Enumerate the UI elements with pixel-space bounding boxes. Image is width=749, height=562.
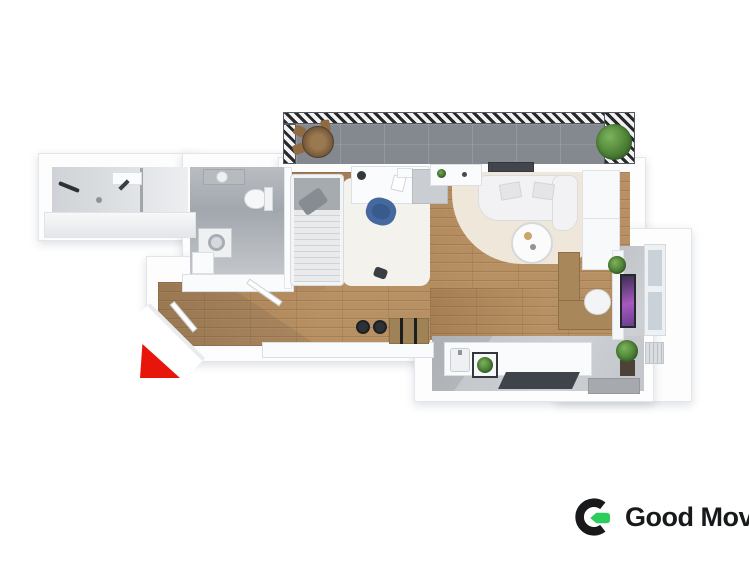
desk-lamp-icon (357, 171, 366, 180)
balcony-door (488, 162, 534, 172)
coffee-table (511, 222, 553, 264)
doormat (588, 378, 640, 394)
hall-bench (389, 318, 429, 344)
brand-logo-text: Good Move (625, 502, 749, 533)
brand-logo: Good Move (573, 496, 749, 538)
sofa-chaise (552, 175, 578, 231)
wall-face-hall (262, 342, 434, 358)
window-pane (648, 250, 662, 286)
bed-mattress (294, 210, 340, 282)
shelf-plant-icon (608, 256, 626, 274)
bar-stool-icon (356, 320, 370, 334)
hall-bench-divider (414, 318, 417, 344)
plant-stand (620, 360, 635, 376)
washing-machine-door (208, 234, 225, 251)
kitchen-mat (498, 372, 580, 389)
coffee-table-item (524, 232, 532, 240)
terrarium-plant-icon (477, 357, 493, 373)
balcony-floor (296, 124, 604, 164)
sofa-pillow (532, 182, 555, 201)
toilet-tank (264, 187, 273, 211)
sideboard-item (462, 172, 467, 177)
office-desk-side (558, 252, 580, 306)
floorplan-render: Good Move (0, 0, 749, 562)
coffee-table-item (530, 244, 536, 250)
tv-icon (620, 274, 636, 328)
balcony-railing-top (283, 112, 635, 124)
toilet-icon (244, 189, 266, 209)
hall-bench-divider (400, 318, 403, 344)
wall-face-bathroom (182, 274, 294, 292)
balcony-plant-icon (596, 124, 632, 160)
window-pane (648, 292, 662, 330)
wall-face-left-wing (44, 212, 196, 238)
balcony-table-icon (302, 126, 334, 158)
sideboard-plant-icon (437, 169, 446, 178)
kitchen-faucet-icon (458, 350, 462, 355)
washbasin-icon (216, 171, 228, 183)
brand-logo-mark-icon (573, 496, 615, 538)
desk-gadget (397, 168, 413, 178)
floor-plant-icon (616, 340, 638, 362)
wardrobe-seam (583, 218, 619, 219)
bathroom-cabinet (192, 252, 214, 274)
shower-drain-icon (96, 197, 102, 203)
radiator-icon (645, 342, 664, 364)
bar-stool-icon (373, 320, 387, 334)
office-chair (584, 289, 611, 315)
